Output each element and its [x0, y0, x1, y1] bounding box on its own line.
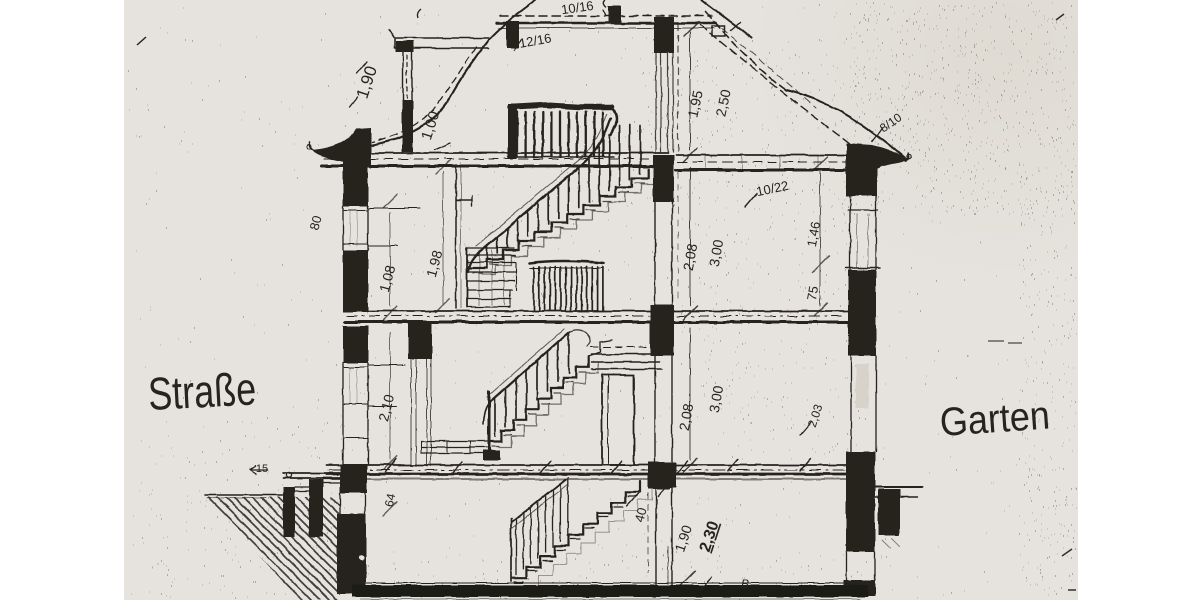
- svg-text:75: 75: [804, 285, 821, 302]
- svg-text:15: 15: [256, 463, 268, 475]
- svg-text:B: B: [741, 577, 749, 591]
- svg-text:Garten: Garten: [938, 393, 1051, 445]
- svg-text:Straße: Straße: [147, 362, 258, 420]
